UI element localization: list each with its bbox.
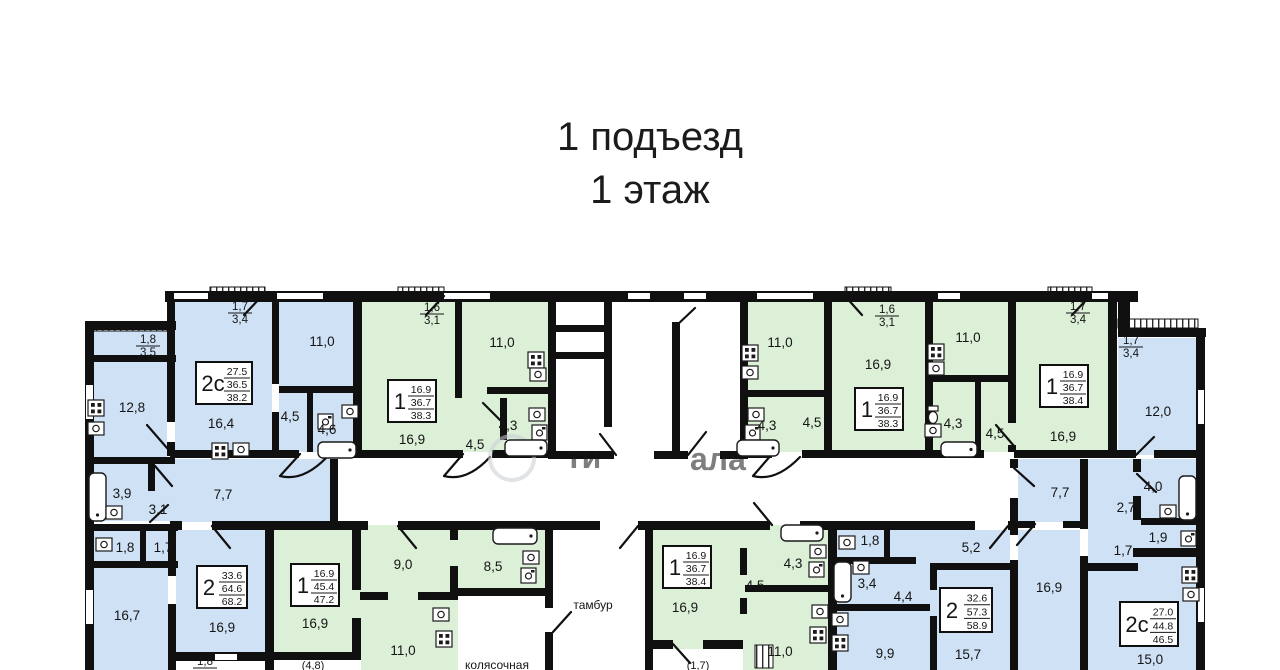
sink-icon xyxy=(742,366,758,379)
room-area-label: 16,9 xyxy=(209,620,235,635)
tub-drain xyxy=(1186,512,1189,515)
stove-body xyxy=(742,345,758,361)
balcony-area-label: 3,4 xyxy=(232,314,249,326)
burner xyxy=(752,355,756,359)
room-area-label: 4,3 xyxy=(758,418,777,433)
stove-icon xyxy=(212,443,228,459)
sink-icon xyxy=(529,408,545,421)
apartment-type-label: 1 xyxy=(669,555,681,580)
balcony-area-label: 3,1 xyxy=(424,315,440,327)
room-area-label: (1,7) xyxy=(687,660,710,670)
balcony-area-label: 3,4 xyxy=(1070,314,1087,326)
room-area-label: 12,0 xyxy=(1145,404,1171,419)
burner xyxy=(752,348,756,352)
room-area-label: 11,0 xyxy=(767,644,792,659)
tub-drain xyxy=(96,513,99,516)
apartment-area-value: 68.2 xyxy=(222,596,243,608)
room-area-label: 3,1 xyxy=(149,502,168,517)
burner xyxy=(531,362,535,366)
burner xyxy=(1192,577,1196,581)
room-area-label: 16,9 xyxy=(302,616,328,631)
sink-icon xyxy=(433,608,449,621)
sink-bowl xyxy=(1165,508,1171,514)
sink-bowl xyxy=(101,541,107,547)
apartment-area-value: 32.6 xyxy=(967,593,988,605)
sink-icon xyxy=(530,368,546,381)
sink-bowl xyxy=(747,369,753,375)
burner xyxy=(820,637,824,641)
room-area-label: 1,7 xyxy=(154,540,173,555)
sink-icon xyxy=(925,424,941,437)
washer-panel xyxy=(542,427,546,430)
tub-drain xyxy=(815,531,818,534)
room-area-label: 16,9 xyxy=(399,432,425,447)
room-area-label: 4,3 xyxy=(499,418,518,433)
washer-icon xyxy=(532,425,547,440)
tub-drain xyxy=(969,448,972,451)
sink-bowl xyxy=(930,427,936,433)
room-area-label: 3,9 xyxy=(113,486,132,501)
room-area-label: тамбур xyxy=(573,598,613,612)
burner xyxy=(215,446,219,450)
sink-icon xyxy=(342,405,358,418)
burner xyxy=(446,634,450,638)
burner xyxy=(98,403,102,407)
burner xyxy=(931,354,935,358)
washer-icon xyxy=(1181,531,1196,546)
floorplan-page: 1 подъезд 1 этаж тиала 11,012,816,44,54,… xyxy=(0,0,1280,670)
burner xyxy=(538,362,542,366)
apartment-type-label: 2 xyxy=(946,598,958,623)
sink-bowl xyxy=(238,446,244,452)
burner xyxy=(813,630,817,634)
tub-icon xyxy=(737,440,779,456)
burner xyxy=(531,355,535,359)
balcony-area-label: 1,6 xyxy=(879,304,895,316)
tub-icon xyxy=(1179,476,1196,520)
room-area-label: 16,9 xyxy=(1036,580,1062,595)
room-area-label: 5,2 xyxy=(962,540,981,555)
stove-icon xyxy=(88,400,104,416)
sink-bowl xyxy=(837,616,843,622)
burner xyxy=(1185,570,1189,574)
room-area-label: 4,5 xyxy=(466,437,485,452)
sink-bowl xyxy=(528,554,534,560)
apartment-type-label: 1 xyxy=(394,389,406,414)
room-area-label: 12,8 xyxy=(119,400,145,415)
room-area-label: 11,0 xyxy=(955,330,980,345)
sink-icon xyxy=(88,422,104,435)
apartment-type-label: 1 xyxy=(861,397,873,422)
room-area-label: 11,0 xyxy=(489,335,514,350)
stove-body xyxy=(810,627,826,643)
room-area-label: 16,7 xyxy=(114,608,140,623)
washer-drum xyxy=(537,430,543,436)
apartment-area-value: 36.7 xyxy=(411,397,432,409)
tub-drain xyxy=(771,446,774,449)
sink-icon xyxy=(839,536,855,549)
title-entrance: 1 подъезд xyxy=(557,115,743,159)
room-area-label: 16,4 xyxy=(208,416,235,431)
apartment-area-value: 16.9 xyxy=(411,384,432,396)
washer-drum xyxy=(814,567,820,573)
burner xyxy=(820,630,824,634)
tub-icon xyxy=(505,440,547,456)
sink-bowl xyxy=(438,611,444,617)
sink-icon xyxy=(928,362,944,375)
sink-icon xyxy=(1160,505,1176,518)
room-area-label: 4,3 xyxy=(944,416,963,431)
room-area-label: 1,8 xyxy=(861,533,880,548)
sink-icon xyxy=(523,551,539,564)
room-area-label: 4,5 xyxy=(803,415,822,430)
washer-icon xyxy=(809,562,824,577)
sink-bowl xyxy=(817,608,823,614)
room-area-label: 1,9 xyxy=(1149,530,1168,545)
balcony-area-label: 3,4 xyxy=(1123,348,1140,360)
sink-icon xyxy=(106,506,122,519)
sink-bowl xyxy=(534,411,540,417)
title-floor: 1 этаж xyxy=(590,168,710,212)
sink-bowl xyxy=(753,411,759,417)
apartment-area-value: 64.6 xyxy=(222,583,243,595)
room-area-label: 2,7 xyxy=(1117,500,1136,515)
tub-drain xyxy=(539,446,542,449)
burner xyxy=(938,347,942,351)
sink-bowl xyxy=(815,548,821,554)
apartment-area-value: 27.0 xyxy=(1153,607,1174,619)
balcony-area-label: 1,7 xyxy=(1123,335,1139,347)
washer-drum xyxy=(1186,536,1192,542)
burner xyxy=(215,453,219,457)
stove-body xyxy=(832,635,848,651)
stove-icon xyxy=(928,344,944,360)
room-area-label: 3,4 xyxy=(858,576,877,591)
room-area-label: 4,5 xyxy=(746,578,765,593)
apartment-area-value: 27.5 xyxy=(227,366,248,378)
room-area-label: 16,9 xyxy=(865,357,891,372)
sink-bowl xyxy=(1188,591,1194,597)
apartment-area-value: 16.9 xyxy=(686,550,707,562)
apartment-type-label: 2с xyxy=(1125,612,1148,637)
apartment-area-value: 57.3 xyxy=(967,606,988,618)
sink-bowl xyxy=(111,509,117,515)
burner xyxy=(98,410,102,414)
stove-icon xyxy=(832,635,848,651)
room-area-label: 16,9 xyxy=(672,600,698,615)
washer-drum xyxy=(526,573,532,579)
sink-bowl xyxy=(933,365,939,371)
sink-icon xyxy=(812,605,828,618)
stove-body xyxy=(436,631,452,647)
burner xyxy=(813,637,817,641)
tub-drain xyxy=(348,448,351,451)
washer-drum xyxy=(750,430,756,436)
room-area-label: 9,9 xyxy=(876,646,895,661)
sink-icon xyxy=(1183,588,1199,601)
room-area-label: 7,7 xyxy=(1051,485,1070,500)
stove-body xyxy=(928,344,944,360)
room-area-label: 4,5 xyxy=(986,426,1005,441)
apartment-area-value: 44.8 xyxy=(1153,620,1174,632)
balcony-area-label: 1,6 xyxy=(424,302,440,314)
stove-icon xyxy=(742,345,758,361)
apartment-area-value: 36.7 xyxy=(686,563,707,575)
apartment-area-value: 36.5 xyxy=(227,379,248,391)
stove-icon xyxy=(1182,567,1198,583)
sink-bowl xyxy=(347,408,353,414)
room-area-label: 11,0 xyxy=(767,335,792,350)
burner xyxy=(745,348,749,352)
apartment-area-value: 47.2 xyxy=(314,594,335,606)
tub-drain xyxy=(841,594,844,597)
burner xyxy=(439,634,443,638)
apartment-area-value: 45.4 xyxy=(314,581,335,593)
apartment-type-label: 1 xyxy=(1046,374,1058,399)
room-area-label: колясочная xyxy=(465,658,529,670)
burner xyxy=(835,638,839,642)
burner xyxy=(446,641,450,645)
wc-bowl xyxy=(929,412,938,424)
sink-icon xyxy=(233,443,249,456)
tub-drain xyxy=(529,534,532,537)
burner xyxy=(1185,577,1189,581)
room-area-label: 4,3 xyxy=(784,556,803,571)
apartment-area-value: 38.4 xyxy=(1063,395,1084,407)
apartment-area-value: 58.9 xyxy=(967,620,988,632)
stove-body xyxy=(88,400,104,416)
tub-icon xyxy=(941,442,977,457)
tub-icon xyxy=(318,442,356,458)
burner xyxy=(91,410,95,414)
burner xyxy=(439,641,443,645)
room-area-label: 4,4 xyxy=(894,589,913,604)
washer-panel xyxy=(531,570,535,573)
apartment-area-value: 16.9 xyxy=(878,392,899,404)
watermark-text: ти xyxy=(566,439,601,475)
burner xyxy=(835,645,839,649)
room-area-label: 7,7 xyxy=(214,487,233,502)
apartment-type-label: 2 xyxy=(203,575,215,600)
apartment-area-value: 38.3 xyxy=(878,418,899,430)
apartment-area-value: 36.7 xyxy=(1063,382,1084,394)
burner xyxy=(745,355,749,359)
burner xyxy=(842,638,846,642)
burner xyxy=(842,645,846,649)
burner xyxy=(938,354,942,358)
room-area-label: 4,6 xyxy=(318,422,337,437)
room-area-label: 4,5 xyxy=(281,409,300,424)
wc-tank xyxy=(928,406,938,411)
sink-icon xyxy=(832,613,848,626)
sink-icon xyxy=(810,545,826,558)
apartment-area-value: 36.7 xyxy=(878,405,899,417)
balcony-area-label: 1,7 xyxy=(232,301,248,313)
stove-body xyxy=(1182,567,1198,583)
sink-bowl xyxy=(93,425,99,431)
stove-icon xyxy=(810,627,826,643)
wc-icon xyxy=(928,406,938,424)
apartment-area-value: 16.9 xyxy=(314,568,335,580)
balcony-area-label: 3,1 xyxy=(879,317,895,329)
stove-body xyxy=(212,443,228,459)
room-area-label: 4,0 xyxy=(1144,479,1163,494)
tub-icon xyxy=(89,473,106,521)
apartment-area-value: 16.9 xyxy=(1063,369,1084,381)
sink-bowl xyxy=(858,564,864,570)
floorplan-canvas: 1 подъезд 1 этаж тиала 11,012,816,44,54,… xyxy=(0,0,1280,670)
sink-icon xyxy=(853,561,869,574)
room-area-label: 16,9 xyxy=(1050,429,1076,444)
stove-icon xyxy=(528,352,544,368)
balcony-area-label: 3,5 xyxy=(140,347,156,359)
room-area-label: 15,7 xyxy=(955,647,981,662)
balcony-area-label: 1,7 xyxy=(1070,301,1086,313)
apartment-type-label: 1 xyxy=(297,573,309,598)
room-area-label: 11,0 xyxy=(309,334,334,349)
room-area-label: 11,0 xyxy=(390,643,415,658)
apartment-area-value: 33.6 xyxy=(222,570,243,582)
room-area-label: 15,0 xyxy=(1137,652,1163,667)
washer-icon xyxy=(521,568,536,583)
burner xyxy=(931,347,935,351)
sink-bowl xyxy=(535,371,541,377)
burner xyxy=(1192,570,1196,574)
room-area-label: (4,8) xyxy=(302,660,325,670)
balcony-area-label: 1,8 xyxy=(140,334,156,346)
stove-body xyxy=(528,352,544,368)
burner xyxy=(222,453,226,457)
burner xyxy=(91,403,95,407)
burner xyxy=(222,446,226,450)
sink-bowl xyxy=(844,539,850,545)
room-area-label: 1,8 xyxy=(116,540,135,555)
sink-icon xyxy=(96,538,112,551)
tub-icon xyxy=(781,525,823,541)
apartment-area-value: 38.4 xyxy=(686,576,707,588)
stove-icon xyxy=(436,631,452,647)
apartment-type-label: 2с xyxy=(201,371,224,396)
room-area-label: 8,5 xyxy=(484,559,503,574)
tub-icon xyxy=(493,528,537,544)
apartment-area-value: 38.2 xyxy=(227,392,248,404)
burner xyxy=(538,355,542,359)
apartment-area-value: 38.3 xyxy=(411,410,432,422)
tub-icon xyxy=(834,562,851,602)
room-area-label: 9,0 xyxy=(394,557,413,572)
washer-panel xyxy=(819,564,823,567)
room-area-label: 1,7 xyxy=(1114,543,1133,558)
washer-panel xyxy=(1191,533,1195,536)
washer-panel xyxy=(328,416,332,419)
balcony-area-label: 1,8 xyxy=(197,656,213,668)
apartment-area-value: 46.5 xyxy=(1153,634,1174,646)
